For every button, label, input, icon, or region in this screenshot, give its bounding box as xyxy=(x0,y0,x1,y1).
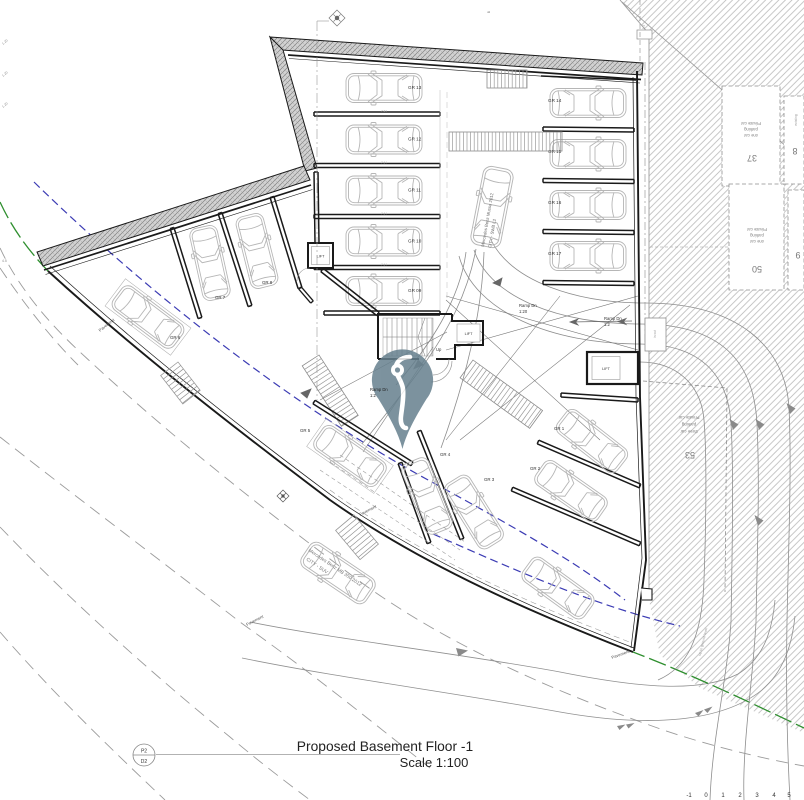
svg-text:1:20: 1:20 xyxy=(519,309,528,314)
svg-text:1:2: 1:2 xyxy=(604,322,610,327)
svg-text:GR 8: GR 8 xyxy=(262,280,273,285)
svg-text:in out: in out xyxy=(653,330,657,338)
svg-text:9: 9 xyxy=(795,250,800,260)
svg-text:Private car: Private car xyxy=(746,227,767,232)
svg-text:one car: one car xyxy=(743,133,758,138)
svg-text:Scale 1:100: Scale 1:100 xyxy=(400,755,469,770)
svg-text:GR 6: GR 6 xyxy=(170,335,181,340)
svg-text:three car: three car xyxy=(680,429,698,434)
svg-text:7.64: 7.64 xyxy=(381,161,387,165)
svg-text:7.64: 7.64 xyxy=(381,263,387,267)
svg-text:GR 5: GR 5 xyxy=(300,428,311,433)
svg-text:parking: parking xyxy=(743,127,757,132)
svg-text:GR 3: GR 3 xyxy=(484,477,495,482)
svg-text:Ramp Dn: Ramp Dn xyxy=(519,303,537,308)
svg-text:50: 50 xyxy=(752,264,762,274)
svg-text:parking: parking xyxy=(749,233,763,238)
svg-text:Private car: Private car xyxy=(740,121,761,126)
svg-text:-1: -1 xyxy=(686,793,692,799)
svg-text:GR 7: GR 7 xyxy=(215,295,226,300)
svg-text:one car: one car xyxy=(749,239,764,244)
svg-text:GR 09: GR 09 xyxy=(408,288,422,293)
svg-text:7.64: 7.64 xyxy=(381,212,387,216)
svg-text:GR 10: GR 10 xyxy=(408,239,422,244)
svg-text:Private car: Private car xyxy=(678,415,700,420)
svg-text:GR 11: GR 11 xyxy=(408,188,421,193)
svg-text:8: 8 xyxy=(792,146,797,156)
svg-text:Ramp Dn: Ramp Dn xyxy=(604,316,622,321)
svg-text:Proposed Basement Floor -1: Proposed Basement Floor -1 xyxy=(297,739,473,754)
svg-text:GR 12: GR 12 xyxy=(408,137,422,142)
svg-text:1:9: 1:9 xyxy=(642,25,646,30)
svg-text:GR 2: GR 2 xyxy=(530,466,541,471)
svg-text:4.5: 4.5 xyxy=(2,259,7,263)
svg-text:GR 16: GR 16 xyxy=(548,200,562,205)
svg-text:existing: existing xyxy=(794,114,798,126)
svg-text:GR 17: GR 17 xyxy=(548,251,562,256)
svg-text:Ramp Dn: Ramp Dn xyxy=(370,387,388,392)
svg-text:GR 13: GR 13 xyxy=(408,85,422,90)
svg-text:GR 1: GR 1 xyxy=(554,426,565,431)
svg-text:P2: P2 xyxy=(141,749,147,755)
svg-text:parking: parking xyxy=(681,422,696,427)
svg-text:LIFT: LIFT xyxy=(317,255,325,259)
svg-text:1:2: 1:2 xyxy=(370,393,376,398)
svg-text:LIFT: LIFT xyxy=(602,367,610,371)
svg-text:Up: Up xyxy=(436,347,442,352)
svg-text:37: 37 xyxy=(747,153,757,163)
svg-text:GR 14: GR 14 xyxy=(548,98,562,103)
svg-text:7.64: 7.64 xyxy=(381,109,387,113)
svg-text:D2: D2 xyxy=(141,759,148,765)
svg-text:53: 53 xyxy=(685,450,695,460)
svg-text:GR 4: GR 4 xyxy=(440,452,451,457)
svg-text:LIFT: LIFT xyxy=(465,332,473,336)
